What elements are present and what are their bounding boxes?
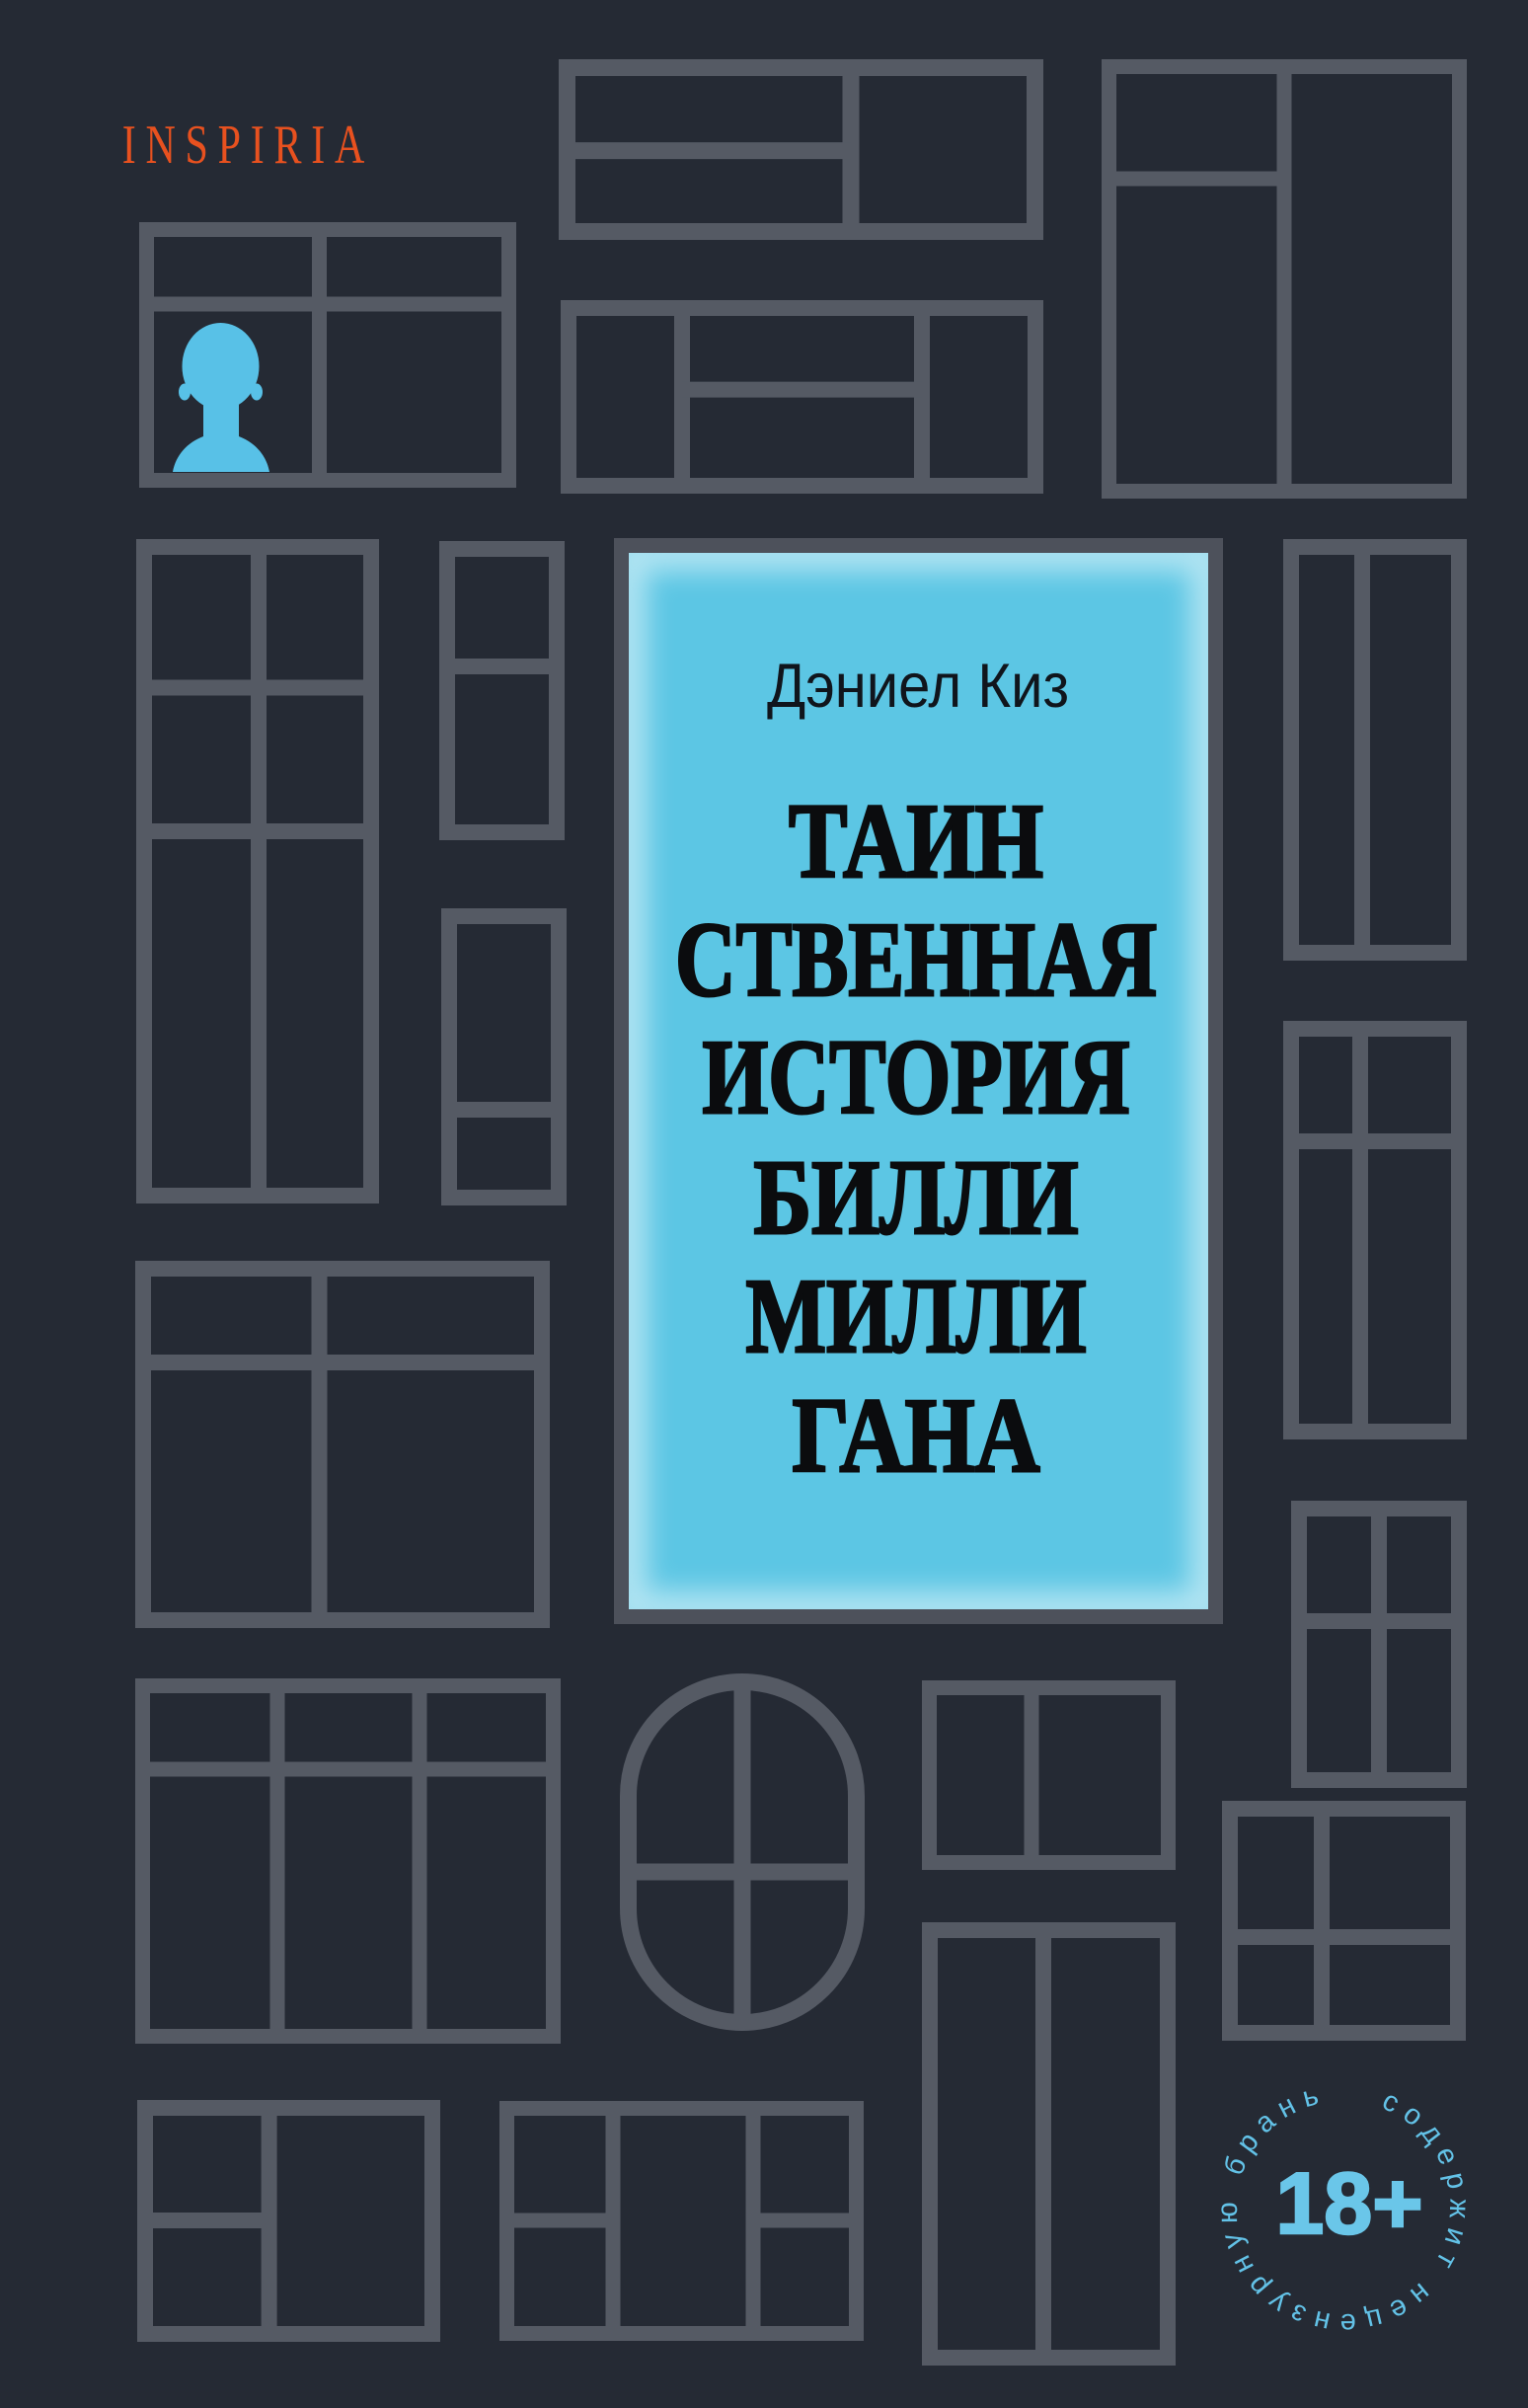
svg-text:СТВЕННАЯ: СТВЕННАЯ <box>675 901 1157 1019</box>
svg-text:БИЛЛИ: БИЛЛИ <box>754 1139 1079 1257</box>
svg-text:Дэниел Киз: Дэниел Киз <box>767 652 1069 721</box>
svg-text:МИЛЛИ: МИЛЛИ <box>746 1258 1087 1375</box>
svg-text:ИСТОРИЯ: ИСТОРИЯ <box>703 1019 1130 1136</box>
svg-text:18+: 18+ <box>1275 2154 1422 2252</box>
svg-text:INSPIRIA: INSPIRIA <box>122 114 374 175</box>
svg-text:ТАИН: ТАИН <box>789 783 1043 900</box>
svg-text:ГАНА: ГАНА <box>793 1377 1040 1495</box>
